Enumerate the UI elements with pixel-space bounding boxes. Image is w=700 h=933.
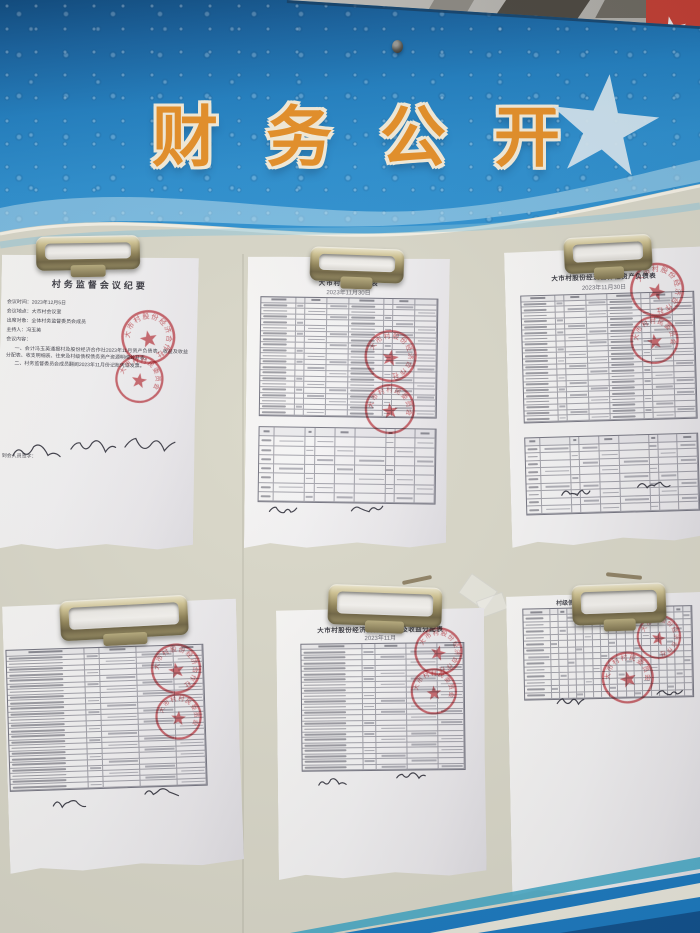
table-label-smudge [261, 440, 271, 442]
table-label-smudge [305, 761, 347, 763]
table-value-smudge [364, 651, 374, 653]
table-value-smudge [296, 378, 302, 380]
table-value-smudge [279, 468, 304, 470]
table-cell [386, 466, 395, 475]
table-value-smudge [589, 313, 606, 315]
table-label-smudge [610, 312, 633, 314]
table-label-smudge [525, 343, 548, 345]
svg-text:大市村村民委员会: 大市村村民委员会 [410, 668, 456, 703]
table-label-smudge [526, 637, 544, 639]
table-value-smudge [381, 700, 405, 702]
table-cell [651, 503, 660, 511]
table-value-smudge [552, 688, 558, 690]
table-cell [572, 505, 581, 513]
table-label-smudge [262, 405, 286, 407]
table-value-smudge [364, 706, 374, 708]
table-cell [581, 505, 601, 513]
table-label-smudge [13, 785, 67, 788]
table-cell [326, 410, 348, 416]
table-label-smudge [11, 740, 65, 743]
table-header-smudge [561, 611, 564, 613]
table-value-smudge [442, 738, 463, 740]
table-label-smudge [263, 338, 287, 340]
table-cell [395, 466, 415, 476]
table-cell [354, 484, 385, 494]
table-value-smudge [677, 391, 694, 393]
clipboard-clip [327, 584, 442, 628]
clip-opening [581, 590, 658, 615]
clip-lever [365, 620, 404, 633]
table-value-smudge [590, 359, 607, 361]
table-value-smudge [585, 681, 591, 683]
table-value-smudge [365, 722, 375, 724]
table-value-smudge [418, 442, 434, 444]
table-label-smudge [527, 417, 550, 419]
table-value-smudge [624, 460, 648, 462]
table-value-smudge [380, 656, 404, 658]
table-value-smudge [557, 320, 563, 322]
table-label-smudge [304, 750, 346, 752]
table-cell [275, 437, 306, 447]
table-cell [645, 413, 654, 419]
table-label-smudge [304, 722, 346, 724]
table-cell [274, 483, 305, 493]
table-label-smudge [305, 766, 347, 768]
table-value-smudge [650, 445, 657, 447]
clipboard-clip [59, 595, 189, 642]
table-cell [259, 427, 275, 436]
table-value-smudge [396, 306, 413, 308]
table-label-smudge [528, 471, 538, 473]
table-value-smudge [656, 386, 673, 388]
table-header-smudge [570, 296, 579, 298]
table-value-smudge [90, 767, 101, 769]
table-header-smudge [529, 441, 535, 443]
table-value-smudge [412, 732, 436, 734]
table-cell [335, 456, 355, 466]
table-label-smudge [525, 372, 548, 374]
table-cell [275, 455, 306, 465]
table-cell [305, 456, 314, 465]
table-value-smudge [307, 367, 324, 369]
table-value-smudge [655, 374, 672, 376]
table-value-smudge [558, 360, 564, 362]
handwritten-signature [396, 768, 428, 787]
table-label-smudge [304, 711, 346, 713]
table-cell [260, 410, 295, 416]
table-label-smudge [9, 662, 63, 665]
table-cell [415, 485, 435, 495]
handwritten-signature [70, 433, 121, 463]
table-header-smudge [677, 608, 680, 610]
table-value-smudge [570, 411, 587, 413]
table-cell [274, 464, 305, 474]
table-label-smudge [304, 695, 346, 697]
table-cell [395, 448, 415, 458]
table-label-smudge [10, 701, 64, 704]
table-header-smudge [384, 645, 397, 647]
table-label-smudge [526, 406, 549, 408]
table-value-smudge [680, 444, 695, 446]
table-value-smudge [558, 377, 564, 379]
table-value-smudge [106, 676, 135, 679]
table-label-smudge [9, 673, 63, 676]
table-value-smudge [592, 416, 609, 418]
table-value-smudge [583, 462, 598, 464]
table-value-smudge [317, 459, 333, 461]
table-value-smudge [417, 488, 433, 490]
table-value-smudge [684, 659, 690, 661]
table-value-smudge [396, 323, 413, 325]
handwritten-signature [144, 785, 180, 804]
table-cell [275, 427, 306, 437]
table-label-smudge [13, 779, 67, 782]
table-cell [415, 439, 435, 449]
table-label-smudge [261, 449, 271, 451]
svg-text:大市村村民委员会: 大市村村民委员会 [156, 693, 202, 728]
table-label-smudge [10, 695, 64, 698]
table-value-smudge [381, 727, 405, 729]
table-label-smudge [304, 739, 346, 741]
table-label-smudge [12, 768, 66, 771]
table-cell [542, 506, 572, 514]
table-value-smudge [329, 373, 346, 375]
table-header-smudge [531, 297, 546, 299]
table-value-smudge [337, 469, 353, 471]
table-value-smudge [279, 486, 304, 488]
clip-opening [45, 242, 131, 259]
table-label-smudge [11, 723, 65, 726]
table-label-smudge [611, 358, 634, 360]
table-header-smudge [604, 438, 612, 440]
table-cell [315, 446, 335, 456]
clip-lever [604, 618, 636, 631]
table-value-smudge [576, 649, 582, 651]
table-label-smudge [526, 643, 544, 645]
table-value-smudge [386, 488, 393, 490]
table-cell [259, 455, 275, 464]
debris-straw [606, 572, 642, 580]
table-label-smudge [12, 751, 66, 754]
table-cell [386, 457, 395, 466]
table-label-smudge [261, 458, 271, 460]
red-seal-stamp: 大市村村民委员会 [362, 381, 418, 437]
table-value-smudge [308, 311, 325, 313]
table-label-smudge [612, 409, 635, 411]
table-label-smudge [11, 746, 65, 749]
table-cell [415, 476, 435, 486]
table-label-smudge [527, 688, 545, 690]
handwritten-signature [52, 796, 86, 816]
table-value-smudge [306, 450, 313, 452]
table-cell [305, 474, 314, 483]
table-label-smudge [525, 349, 548, 351]
table-cell [395, 475, 415, 485]
table-cell [355, 466, 386, 476]
table-header-smudge [573, 439, 577, 441]
table-value-smudge [365, 760, 375, 762]
table-value-smudge [417, 396, 434, 398]
table-value-smudge [528, 656, 549, 658]
table-value-smudge [330, 333, 347, 335]
handwritten-signature [268, 503, 299, 522]
table-value-smudge [418, 312, 435, 314]
table-cell [679, 502, 699, 510]
table-header-smudge [683, 436, 691, 438]
table-label-smudge [528, 456, 538, 458]
table-cell [611, 413, 646, 420]
table-cell [259, 446, 275, 455]
table-label-smudge [11, 734, 65, 737]
table-value-smudge [307, 395, 324, 397]
table-value-smudge [381, 738, 405, 740]
table-cell [259, 436, 275, 445]
table-value-smudge [589, 301, 606, 303]
table-value-smudge [569, 382, 586, 384]
table-value-smudge [681, 482, 696, 484]
board-bottom-stripe [0, 823, 700, 933]
table-header-smudge [421, 433, 429, 435]
table-cell [585, 692, 593, 699]
table-value-smudge [181, 769, 204, 771]
table-value-smudge [88, 700, 99, 702]
table-value-smudge [582, 447, 597, 449]
table-label-smudge [529, 509, 539, 511]
clip-lever [71, 265, 107, 278]
table-value-smudge [297, 322, 303, 324]
table-value-smudge [644, 369, 650, 371]
table-header-smudge [110, 649, 126, 651]
table-value-smudge [364, 667, 374, 669]
table-label-smudge [263, 327, 287, 329]
table-value-smudge [442, 749, 463, 751]
table-cell [305, 483, 314, 492]
table-label-smudge [10, 690, 64, 693]
table-cell [177, 779, 207, 786]
table-cell [589, 414, 611, 420]
table-cell [259, 473, 275, 482]
table-value-smudge [644, 380, 650, 382]
table-cell [314, 474, 334, 484]
table-label-smudge [611, 375, 634, 377]
table-value-smudge [603, 507, 618, 509]
table-label-smudge [10, 712, 64, 715]
table-label-smudge [525, 360, 548, 362]
table-label-smudge [11, 729, 65, 732]
table-value-smudge [398, 451, 414, 453]
table-value-smudge [681, 459, 696, 461]
table-value-smudge [650, 468, 657, 470]
table-cell [314, 483, 334, 493]
handwritten-signature [12, 439, 64, 470]
table-value-smudge [412, 760, 436, 762]
table-value-smudge [569, 365, 586, 367]
table-value-smudge [645, 409, 651, 411]
clip-lever [103, 632, 147, 646]
debris-straw [402, 575, 432, 585]
table-cell [305, 493, 314, 502]
table-value-smudge [545, 470, 569, 472]
table-cell [654, 413, 676, 419]
table-cell [355, 447, 386, 457]
table-header-smudge [271, 299, 286, 301]
table-label-smudge [351, 305, 375, 307]
table-label-smudge [524, 326, 547, 328]
table-label-smudge [12, 762, 66, 765]
table-value-smudge [381, 711, 405, 713]
table-cell [385, 484, 394, 493]
table-label-smudge [304, 717, 346, 719]
table-label-smudge [526, 383, 549, 385]
table-value-smudge [330, 345, 347, 347]
table-value-smudge [560, 675, 566, 677]
table-value-smudge [146, 776, 175, 779]
table-label-smudge [263, 315, 287, 317]
table-label-smudge [261, 477, 271, 479]
table-value-smudge [602, 469, 617, 471]
table-cell [89, 782, 104, 788]
table-label-smudge [528, 463, 538, 465]
table-value-smudge [308, 327, 325, 329]
table-value-smudge [109, 771, 138, 774]
red-seal-stamp: 大市村村民委员会 [626, 311, 684, 369]
table-label-smudge [611, 364, 634, 366]
table-cell [568, 415, 590, 421]
table-cell [527, 506, 542, 514]
table-label-smudge [262, 372, 286, 374]
table-label-smudge [304, 728, 346, 730]
table-value-smudge [279, 440, 304, 442]
table-value-smudge [589, 330, 606, 332]
red-seal-stamp: 大市村村民委员会 [111, 350, 168, 407]
table-cell [306, 446, 315, 455]
table-value-smudge [441, 721, 462, 723]
table-value-smudge [330, 317, 347, 319]
table-label-smudge [526, 400, 549, 402]
table-cell [304, 410, 326, 416]
table-label-smudge [525, 355, 548, 357]
table-value-smudge [584, 636, 590, 638]
table-value-smudge [656, 414, 673, 416]
table-value-smudge [568, 336, 585, 338]
table-value-smudge [359, 460, 384, 462]
table-value-smudge [417, 460, 433, 462]
table-label-smudge [303, 657, 345, 659]
table-cell [355, 456, 386, 466]
table-value-smudge [305, 496, 312, 498]
table-value-smudge [87, 683, 98, 685]
table-value-smudge [381, 766, 405, 768]
table-value-smudge [108, 744, 137, 747]
table-label-smudge [261, 486, 271, 488]
table-label-smudge [304, 662, 346, 664]
table-label-smudge [524, 332, 547, 334]
table-label-smudge [612, 392, 635, 394]
svg-text:大市村村民委员会: 大市村村民委员会 [628, 313, 680, 354]
document-body: 会议时间：2023年12月5日会议地点：大市村会议室出席对象：全体村务监督委员会… [0, 254, 199, 553]
table-value-smudge [380, 672, 404, 674]
table-value-smudge [86, 655, 97, 657]
table-cell [395, 485, 415, 495]
table-label-smudge [612, 381, 635, 383]
table-cell [415, 448, 435, 458]
table-value-smudge [296, 350, 302, 352]
table-cell [660, 503, 680, 511]
table-value-smudge [678, 408, 695, 410]
table-header-smudge [651, 437, 655, 439]
table-cell [259, 492, 275, 501]
table-label-smudge [612, 398, 635, 400]
table-value-smudge [397, 479, 413, 481]
table-cell [415, 429, 435, 439]
table-value-smudge [308, 339, 325, 341]
table-value-smudge [329, 361, 346, 363]
table-value-smudge [602, 454, 617, 456]
table-value-smudge [108, 760, 137, 763]
clip-lever [594, 266, 624, 280]
table-label-smudge [526, 377, 549, 379]
table-cell [386, 438, 395, 447]
table-value-smudge [88, 711, 99, 713]
table-label-smudge [525, 366, 548, 368]
table-label-smudge [524, 337, 547, 339]
table-label-smudge [262, 389, 286, 391]
table-label-smudge [526, 412, 549, 414]
handwritten-signature [656, 685, 684, 703]
table-cell [414, 412, 436, 418]
table-value-smudge [330, 305, 347, 307]
table-cell [259, 483, 275, 492]
table-label-smudge [12, 757, 66, 760]
table-label-smudge [304, 706, 346, 708]
table-cell [594, 692, 602, 699]
table-value-smudge [571, 455, 578, 457]
table-value-smudge [682, 497, 697, 499]
table-header-smudge [399, 301, 408, 303]
table-value-smudge [556, 303, 562, 305]
table-cell [274, 492, 305, 502]
table-label-smudge [304, 673, 346, 675]
table-value-smudge [545, 447, 569, 449]
table-value-smudge [551, 643, 557, 645]
table-label-smudge [263, 321, 287, 323]
table-value-smudge [296, 361, 302, 363]
table-label-smudge [263, 360, 287, 362]
table-value-smudge [317, 441, 333, 443]
table-value-smudge [329, 390, 346, 392]
table-cell [685, 690, 693, 697]
financial-table [258, 426, 437, 504]
table-value-smudge [381, 683, 405, 685]
table-value-smudge [569, 354, 586, 356]
table-label-smudge [304, 733, 346, 735]
table-cell [315, 456, 335, 466]
table-value-smudge [107, 704, 136, 707]
table-value-smudge [365, 749, 375, 751]
table-label-smudge [263, 310, 287, 312]
table-value-smudge [106, 688, 135, 691]
clipboard-clip [571, 582, 666, 625]
table-value-smudge [412, 743, 436, 745]
table-value-smudge [381, 755, 405, 757]
table-label-smudge [263, 304, 287, 306]
clip-opening [319, 254, 396, 273]
table-value-smudge [417, 385, 434, 387]
table-cell [525, 693, 552, 700]
table-label-smudge [262, 394, 286, 396]
table-value-smudge [603, 492, 618, 494]
table-label-smudge [9, 656, 63, 659]
